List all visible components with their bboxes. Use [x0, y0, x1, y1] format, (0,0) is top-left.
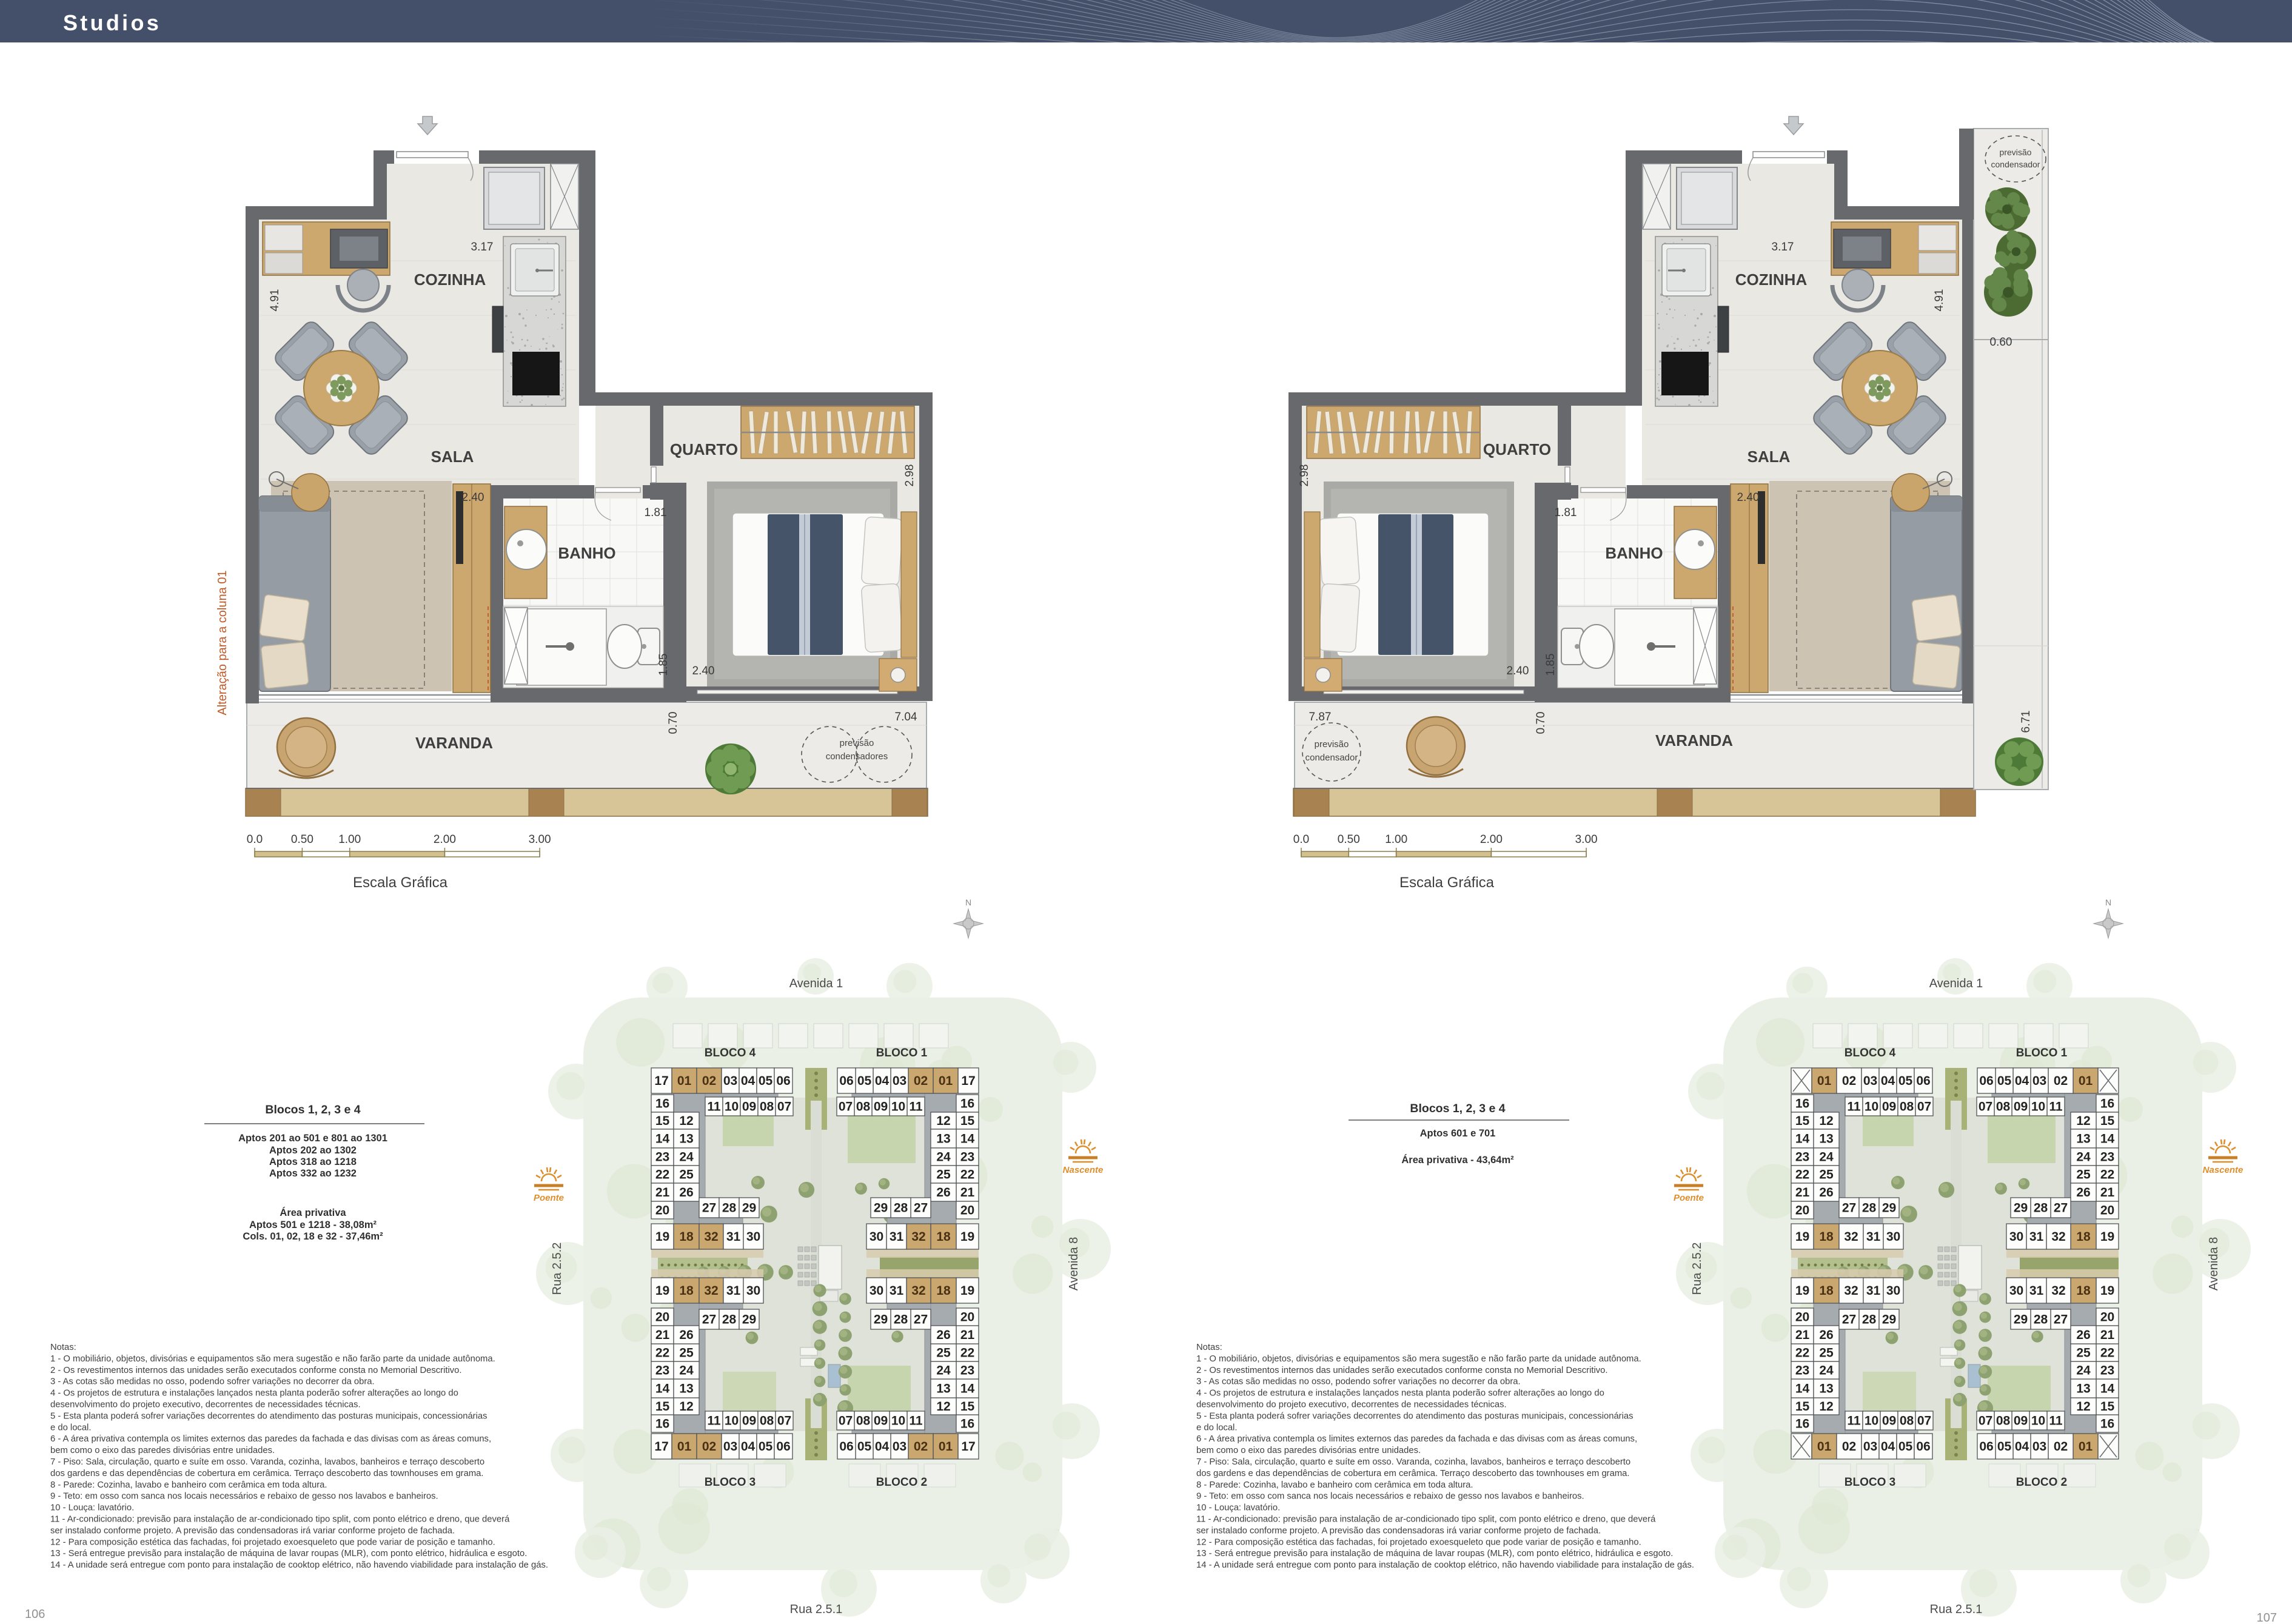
svg-text:09: 09: [874, 1414, 888, 1428]
svg-text:Escala Gráfica: Escala Gráfica: [353, 874, 448, 891]
svg-text:04: 04: [2015, 1074, 2029, 1088]
svg-text:Aptos 202 ao 1302: Aptos 202 ao 1302: [269, 1145, 357, 1156]
svg-text:Poente: Poente: [534, 1193, 564, 1203]
svg-text:15: 15: [2100, 1400, 2115, 1414]
svg-text:19: 19: [1795, 1284, 1809, 1298]
svg-text:29: 29: [874, 1201, 888, 1215]
svg-text:15: 15: [960, 1400, 975, 1414]
svg-text:06: 06: [776, 1440, 790, 1454]
svg-text:Nascente: Nascente: [1063, 1165, 1104, 1175]
svg-text:15: 15: [1795, 1400, 1810, 1414]
svg-text:23: 23: [655, 1150, 669, 1164]
svg-text:25: 25: [2076, 1168, 2091, 1182]
svg-text:Aptos 318 ao 1218: Aptos 318 ao 1218: [269, 1156, 357, 1167]
svg-text:previsão: previsão: [1315, 739, 1349, 750]
svg-text:27: 27: [702, 1201, 716, 1215]
svg-text:03: 03: [893, 1074, 906, 1088]
svg-text:Aptos 501 e 1218 - 38,08m²: Aptos 501 e 1218 - 38,08m²: [249, 1220, 377, 1230]
svg-text:24: 24: [2076, 1364, 2091, 1378]
svg-text:05: 05: [1898, 1074, 1913, 1088]
svg-text:4 - Os projetos de estrutura e: 4 - Os projetos de estrutura e instalaçõ…: [50, 1389, 458, 1398]
svg-text:1.85: 1.85: [657, 654, 670, 676]
svg-text:2.98: 2.98: [903, 465, 916, 487]
svg-text:21: 21: [655, 1186, 670, 1200]
svg-text:02: 02: [1842, 1440, 1856, 1454]
svg-text:18: 18: [2076, 1230, 2091, 1244]
svg-text:25: 25: [2076, 1346, 2091, 1360]
svg-text:7.87: 7.87: [1309, 711, 1332, 723]
svg-text:12: 12: [2076, 1400, 2090, 1414]
svg-text:02: 02: [914, 1440, 928, 1454]
svg-text:08: 08: [760, 1100, 774, 1114]
svg-text:8 - Parede: Cozinha, lavabo e: 8 - Parede: Cozinha, lavabo e banheiro c…: [50, 1480, 327, 1490]
svg-text:26: 26: [679, 1328, 693, 1342]
svg-text:0.70: 0.70: [1535, 712, 1547, 734]
svg-text:19: 19: [960, 1284, 974, 1298]
svg-text:22: 22: [655, 1346, 669, 1360]
svg-text:22: 22: [1795, 1168, 1809, 1182]
svg-text:01: 01: [2079, 1440, 2093, 1454]
svg-text:03: 03: [2032, 1440, 2046, 1454]
svg-text:17: 17: [654, 1440, 668, 1454]
svg-text:N: N: [2105, 898, 2111, 907]
svg-text:19: 19: [655, 1284, 669, 1298]
svg-text:24: 24: [936, 1364, 951, 1378]
svg-text:27: 27: [702, 1313, 716, 1327]
svg-text:desenvolvimento do projeto exe: desenvolvimento do projeto executivo, de…: [1196, 1400, 1507, 1410]
svg-text:28: 28: [722, 1201, 737, 1215]
svg-text:05: 05: [857, 1440, 872, 1454]
svg-text:14 - A unidade será entregue c: 14 - A unidade será entregue com ponto p…: [1196, 1560, 1694, 1570]
svg-text:25: 25: [1819, 1346, 1834, 1360]
svg-text:27: 27: [2054, 1313, 2068, 1327]
svg-text:BLOCO 2: BLOCO 2: [2016, 1476, 2067, 1489]
svg-text:21: 21: [960, 1186, 975, 1200]
svg-text:28: 28: [722, 1313, 737, 1327]
svg-text:Notas:: Notas:: [50, 1343, 76, 1352]
svg-text:08: 08: [1900, 1100, 1914, 1114]
svg-text:15: 15: [655, 1400, 670, 1414]
svg-text:Aptos 601 e 701: Aptos 601 e 701: [1420, 1128, 1496, 1139]
svg-text:20: 20: [960, 1204, 974, 1218]
svg-text:17: 17: [961, 1440, 975, 1454]
svg-text:04: 04: [875, 1440, 890, 1454]
svg-text:18: 18: [1819, 1230, 1834, 1244]
svg-text:Avenida 8: Avenida 8: [2207, 1237, 2220, 1291]
svg-text:01: 01: [677, 1440, 692, 1454]
svg-text:25: 25: [679, 1346, 694, 1360]
svg-text:1.81: 1.81: [645, 506, 667, 519]
svg-text:16: 16: [655, 1417, 669, 1431]
svg-text:32: 32: [2051, 1284, 2065, 1298]
svg-text:09: 09: [742, 1414, 756, 1428]
svg-text:3.17: 3.17: [471, 241, 494, 253]
svg-text:1.00: 1.00: [1385, 833, 1407, 846]
svg-text:32: 32: [2051, 1230, 2065, 1244]
svg-text:30: 30: [870, 1284, 883, 1298]
svg-text:01: 01: [1817, 1074, 1832, 1088]
svg-text:4 - Os projetos de estrutura e: 4 - Os projetos de estrutura e instalaçõ…: [1196, 1389, 1604, 1398]
svg-text:19: 19: [655, 1230, 669, 1244]
svg-text:20: 20: [655, 1204, 669, 1218]
svg-text:11: 11: [707, 1100, 721, 1114]
svg-text:27: 27: [1842, 1313, 1856, 1327]
svg-text:18: 18: [936, 1230, 951, 1244]
svg-text:02: 02: [2054, 1074, 2068, 1088]
svg-text:13: 13: [2076, 1132, 2090, 1146]
svg-text:32: 32: [1844, 1230, 1858, 1244]
svg-text:5 - Esta planta poderá sofrer: 5 - Esta planta poderá sofrer variações …: [1196, 1411, 1634, 1421]
svg-text:COZINHA: COZINHA: [1735, 270, 1808, 289]
svg-text:30: 30: [1886, 1284, 1900, 1298]
svg-text:07: 07: [1979, 1100, 1992, 1114]
svg-text:BLOCO 3: BLOCO 3: [1845, 1476, 1895, 1489]
svg-text:0.50: 0.50: [291, 833, 313, 846]
svg-text:16: 16: [960, 1417, 974, 1431]
svg-text:02: 02: [702, 1440, 716, 1454]
svg-text:23: 23: [960, 1150, 974, 1164]
svg-text:18: 18: [2076, 1284, 2091, 1298]
svg-text:Área privativa: Área privativa: [280, 1207, 346, 1218]
svg-text:12: 12: [679, 1400, 693, 1414]
svg-text:3 - As cotas são medidas no os: 3 - As cotas são medidas no osso, podend…: [50, 1377, 375, 1387]
svg-text:11: 11: [2049, 1414, 2063, 1428]
svg-text:22: 22: [2100, 1346, 2114, 1360]
svg-text:29: 29: [742, 1313, 756, 1327]
svg-text:2.00: 2.00: [434, 833, 456, 846]
svg-text:16: 16: [1795, 1417, 1809, 1431]
svg-text:Blocos 1, 2, 3 e 4: Blocos 1, 2, 3 e 4: [265, 1103, 360, 1116]
svg-text:5 - Esta planta poderá sofrer: 5 - Esta planta poderá sofrer variações …: [50, 1411, 488, 1421]
svg-text:dos gardens e das dependências: dos gardens e das dependências de cobert…: [1196, 1469, 1630, 1478]
svg-text:12: 12: [936, 1114, 950, 1128]
svg-text:31: 31: [890, 1230, 904, 1244]
svg-text:Nascente: Nascente: [2203, 1165, 2243, 1175]
svg-text:condensadores: condensadores: [826, 751, 888, 762]
svg-text:12: 12: [1819, 1400, 1833, 1414]
svg-text:24: 24: [2076, 1150, 2091, 1164]
svg-text:20: 20: [1795, 1310, 1809, 1324]
svg-text:02: 02: [914, 1074, 928, 1088]
svg-text:Aptos 201 ao 501 e 801 ao 1301: Aptos 201 ao 501 e 801 ao 1301: [238, 1133, 387, 1144]
svg-text:2.40: 2.40: [692, 665, 715, 677]
svg-text:16: 16: [2100, 1097, 2114, 1111]
svg-text:15: 15: [2100, 1114, 2115, 1128]
svg-text:26: 26: [1819, 1186, 1833, 1200]
svg-text:30: 30: [2009, 1284, 2023, 1298]
svg-text:2.40: 2.40: [1507, 665, 1529, 677]
svg-text:0.60: 0.60: [1990, 336, 2012, 349]
svg-text:23: 23: [1795, 1150, 1809, 1164]
svg-text:17: 17: [654, 1074, 668, 1088]
svg-text:31: 31: [2029, 1284, 2044, 1298]
svg-text:24: 24: [679, 1364, 694, 1378]
svg-text:27: 27: [2054, 1201, 2068, 1215]
svg-text:02: 02: [2054, 1440, 2068, 1454]
svg-text:29: 29: [874, 1313, 888, 1327]
svg-text:01: 01: [1817, 1440, 1832, 1454]
svg-text:32: 32: [704, 1284, 718, 1298]
svg-text:16: 16: [1795, 1097, 1809, 1111]
svg-text:13: 13: [1819, 1382, 1833, 1396]
svg-text:3.00: 3.00: [529, 833, 551, 846]
svg-text:30: 30: [746, 1230, 760, 1244]
svg-text:6.71: 6.71: [2020, 711, 2032, 733]
svg-text:24: 24: [1819, 1364, 1834, 1378]
svg-text:28: 28: [894, 1201, 908, 1215]
svg-text:30: 30: [746, 1284, 760, 1298]
svg-text:1.81: 1.81: [1555, 506, 1577, 519]
svg-text:14: 14: [960, 1132, 975, 1146]
svg-text:VARANDA: VARANDA: [1655, 731, 1733, 750]
svg-text:25: 25: [1819, 1168, 1834, 1182]
svg-text:03: 03: [723, 1440, 737, 1454]
svg-text:3.17: 3.17: [1772, 241, 1794, 253]
svg-text:11: 11: [1847, 1414, 1861, 1428]
svg-text:09: 09: [1882, 1414, 1896, 1428]
svg-text:16: 16: [2100, 1417, 2114, 1431]
svg-text:2.00: 2.00: [1480, 833, 1503, 846]
svg-text:Rua 2.5.1: Rua 2.5.1: [1930, 1603, 1983, 1616]
svg-text:19: 19: [2100, 1230, 2114, 1244]
svg-text:28: 28: [1862, 1201, 1877, 1215]
svg-text:14: 14: [655, 1382, 670, 1396]
svg-text:20: 20: [1795, 1204, 1809, 1218]
svg-text:13: 13: [679, 1382, 693, 1396]
svg-text:08: 08: [1996, 1414, 2011, 1428]
svg-text:1 - O mobiliário, objetos, div: 1 - O mobiliário, objetos, divisórias e …: [1196, 1354, 1641, 1364]
svg-text:23: 23: [960, 1364, 974, 1378]
svg-text:32: 32: [1844, 1284, 1858, 1298]
svg-text:23: 23: [1795, 1364, 1809, 1378]
svg-text:10: 10: [891, 1100, 905, 1114]
svg-text:02: 02: [702, 1074, 716, 1088]
svg-text:14: 14: [960, 1382, 975, 1396]
svg-text:16: 16: [655, 1097, 669, 1111]
svg-text:12: 12: [679, 1114, 693, 1128]
svg-text:08: 08: [856, 1414, 871, 1428]
svg-text:17: 17: [961, 1074, 975, 1088]
svg-text:Cols. 01, 02, 18 e 32 - 37,46m: Cols. 01, 02, 18 e 32 - 37,46m²: [243, 1231, 383, 1242]
svg-text:previsão: previsão: [840, 738, 874, 748]
svg-text:25: 25: [936, 1346, 951, 1360]
svg-text:08: 08: [856, 1100, 871, 1114]
svg-text:24: 24: [1819, 1150, 1834, 1164]
svg-text:13: 13: [936, 1382, 950, 1396]
svg-text:12: 12: [2076, 1114, 2090, 1128]
svg-text:BLOCO 2: BLOCO 2: [876, 1476, 927, 1489]
svg-text:31: 31: [726, 1230, 741, 1244]
svg-text:11: 11: [707, 1414, 721, 1428]
svg-text:05: 05: [1997, 1074, 2012, 1088]
svg-text:9 - Teto: em osso com sanca no: 9 - Teto: em osso com sanca nos locais n…: [1196, 1492, 1584, 1502]
svg-text:1 - O mobiliário, objetos, div: 1 - O mobiliário, objetos, divisórias e …: [50, 1354, 495, 1364]
svg-text:06: 06: [776, 1074, 790, 1088]
svg-text:29: 29: [1882, 1201, 1896, 1215]
svg-text:Avenida 1: Avenida 1: [1929, 977, 1983, 990]
svg-text:19: 19: [1795, 1230, 1809, 1244]
svg-text:02: 02: [1842, 1074, 1856, 1088]
svg-text:Rua 2.5.1: Rua 2.5.1: [790, 1603, 843, 1616]
svg-text:10: 10: [1865, 1414, 1878, 1428]
svg-text:21: 21: [2100, 1328, 2115, 1342]
svg-text:23: 23: [2100, 1364, 2114, 1378]
svg-text:4.91: 4.91: [1933, 289, 1946, 312]
svg-text:6 - A área privativa contempla: 6 - A área privativa contempla os limite…: [1196, 1434, 1637, 1444]
svg-text:2 - Os revestimentos internos: 2 - Os revestimentos internos das unidad…: [50, 1366, 462, 1375]
svg-text:16: 16: [960, 1097, 974, 1111]
svg-text:13: 13: [936, 1132, 950, 1146]
svg-text:Avenida 1: Avenida 1: [789, 977, 843, 990]
svg-text:14: 14: [655, 1132, 670, 1146]
svg-text:2.98: 2.98: [1298, 465, 1311, 487]
svg-text:13: 13: [679, 1132, 693, 1146]
svg-text:15: 15: [1795, 1114, 1810, 1128]
svg-text:27: 27: [914, 1201, 928, 1215]
svg-text:bem como o eixo das paredes di: bem como o eixo das paredes divisórias e…: [50, 1446, 275, 1455]
svg-text:2.40: 2.40: [1737, 491, 1760, 504]
svg-text:7 - Piso: Sala, circulação, qu: 7 - Piso: Sala, circulação, quarto e suí…: [50, 1457, 484, 1467]
svg-text:VARANDA: VARANDA: [415, 734, 493, 752]
svg-text:Aptos 332 ao 1232: Aptos 332 ao 1232: [269, 1168, 357, 1179]
svg-text:Poente: Poente: [1674, 1193, 1704, 1203]
svg-text:24: 24: [679, 1150, 694, 1164]
svg-text:29: 29: [2014, 1313, 2028, 1327]
svg-text:04: 04: [2015, 1440, 2029, 1454]
svg-text:e do local.: e do local.: [1196, 1423, 1237, 1432]
svg-text:10: 10: [1865, 1100, 1878, 1114]
svg-text:previsão: previsão: [2000, 147, 2032, 157]
svg-text:14: 14: [2100, 1382, 2115, 1396]
svg-text:26: 26: [1819, 1328, 1833, 1342]
svg-text:29: 29: [2014, 1201, 2028, 1215]
svg-text:BLOCO 4: BLOCO 4: [1845, 1047, 1896, 1059]
svg-text:22: 22: [2100, 1168, 2114, 1182]
svg-text:1.85: 1.85: [1544, 654, 1557, 676]
svg-text:26: 26: [2076, 1328, 2090, 1342]
svg-text:15: 15: [960, 1114, 975, 1128]
svg-text:QUARTO: QUARTO: [1483, 440, 1551, 458]
svg-text:N: N: [965, 898, 971, 907]
svg-text:27: 27: [1842, 1201, 1856, 1215]
svg-text:26: 26: [2076, 1186, 2090, 1200]
svg-text:22: 22: [960, 1168, 974, 1182]
svg-text:29: 29: [1882, 1313, 1896, 1327]
svg-text:Rua 2.5.2: Rua 2.5.2: [1691, 1243, 1704, 1295]
svg-text:28: 28: [1862, 1313, 1877, 1327]
svg-text:0.70: 0.70: [667, 712, 680, 734]
svg-text:BLOCO 1: BLOCO 1: [2016, 1047, 2068, 1059]
svg-text:0.0: 0.0: [247, 833, 263, 846]
svg-text:bem como o eixo das paredes di: bem como o eixo das paredes divisórias e…: [1196, 1446, 1421, 1455]
svg-text:20: 20: [960, 1310, 974, 1324]
svg-text:14 - A unidade será entregue c: 14 - A unidade será entregue com ponto p…: [50, 1560, 548, 1570]
svg-text:Área privativa - 43,64m²: Área privativa - 43,64m²: [1401, 1154, 1514, 1166]
svg-text:05: 05: [1997, 1440, 2012, 1454]
svg-text:BANHO: BANHO: [1605, 544, 1663, 562]
svg-text:15: 15: [655, 1114, 670, 1128]
svg-text:23: 23: [2100, 1150, 2114, 1164]
svg-text:11: 11: [909, 1414, 923, 1428]
svg-text:Studios: Studios: [63, 10, 161, 35]
svg-text:07: 07: [1917, 1100, 1931, 1114]
svg-text:05: 05: [857, 1074, 872, 1088]
svg-text:31: 31: [1866, 1230, 1881, 1244]
svg-text:18: 18: [1819, 1284, 1834, 1298]
svg-text:01: 01: [2079, 1074, 2093, 1088]
svg-text:01: 01: [939, 1440, 953, 1454]
svg-text:07: 07: [777, 1100, 791, 1114]
svg-text:01: 01: [677, 1074, 692, 1088]
svg-text:6 - A área privativa contempla: 6 - A área privativa contempla os limite…: [50, 1434, 491, 1444]
svg-text:21: 21: [1795, 1328, 1810, 1342]
svg-text:18: 18: [936, 1284, 951, 1298]
svg-text:04: 04: [1881, 1440, 1895, 1454]
svg-text:14: 14: [2100, 1132, 2115, 1146]
svg-text:10: 10: [891, 1414, 905, 1428]
svg-text:07: 07: [839, 1100, 853, 1114]
svg-text:04: 04: [741, 1440, 756, 1454]
svg-text:0.0: 0.0: [1293, 833, 1309, 846]
svg-text:condensador: condensador: [1305, 753, 1358, 763]
svg-text:11 - Ar-condicionado: previsão: 11 - Ar-condicionado: previsão para inst…: [50, 1515, 510, 1525]
svg-text:28: 28: [2034, 1313, 2048, 1327]
svg-text:106: 106: [25, 1608, 45, 1621]
svg-text:11 - Ar-condicionado: previsão: 11 - Ar-condicionado: previsão para inst…: [1196, 1515, 1656, 1525]
svg-text:13 - Será entregue previsão pa: 13 - Será entregue previsão para instala…: [1196, 1549, 1673, 1559]
svg-text:10: 10: [725, 1100, 739, 1114]
svg-text:ser instalado conforme projeto: ser instalado conforme projeto. A previs…: [1196, 1526, 1601, 1535]
svg-text:23: 23: [655, 1364, 669, 1378]
svg-text:14: 14: [1795, 1132, 1810, 1146]
svg-text:10: 10: [2031, 1100, 2045, 1114]
svg-text:06: 06: [1916, 1440, 1930, 1454]
svg-text:13: 13: [2076, 1382, 2090, 1396]
svg-text:7.04: 7.04: [895, 711, 917, 723]
svg-text:22: 22: [1795, 1346, 1809, 1360]
svg-text:11: 11: [909, 1100, 923, 1114]
svg-text:13: 13: [1819, 1132, 1833, 1146]
svg-text:09: 09: [742, 1100, 756, 1114]
svg-text:8 - Parede: Cozinha, lavabo e: 8 - Parede: Cozinha, lavabo e banheiro c…: [1196, 1480, 1473, 1490]
svg-text:21: 21: [655, 1328, 670, 1342]
svg-text:13 - Será entregue previsão pa: 13 - Será entregue previsão para instala…: [50, 1549, 527, 1559]
svg-text:27: 27: [914, 1313, 928, 1327]
svg-text:04: 04: [1881, 1074, 1895, 1088]
svg-text:19: 19: [2100, 1284, 2114, 1298]
svg-text:22: 22: [655, 1168, 669, 1182]
svg-text:28: 28: [2034, 1201, 2048, 1215]
svg-text:07: 07: [777, 1414, 791, 1428]
svg-text:21: 21: [2100, 1186, 2115, 1200]
svg-text:12: 12: [1819, 1114, 1833, 1128]
svg-text:05: 05: [759, 1074, 773, 1088]
svg-text:21: 21: [960, 1328, 975, 1342]
svg-text:18: 18: [679, 1230, 694, 1244]
svg-text:4.91: 4.91: [269, 289, 281, 312]
svg-text:QUARTO: QUARTO: [670, 440, 738, 458]
svg-text:31: 31: [726, 1284, 741, 1298]
svg-text:08: 08: [760, 1414, 774, 1428]
svg-text:Avenida 8: Avenida 8: [1067, 1237, 1081, 1291]
svg-text:05: 05: [759, 1440, 773, 1454]
svg-text:BLOCO 3: BLOCO 3: [705, 1476, 756, 1489]
svg-text:SALA: SALA: [1747, 448, 1791, 466]
svg-text:32: 32: [911, 1284, 925, 1298]
svg-text:Escala Gráfica: Escala Gráfica: [1399, 874, 1495, 891]
svg-text:09: 09: [2014, 1100, 2028, 1114]
svg-text:3 - As cotas são medidas no os: 3 - As cotas são medidas no osso, podend…: [1196, 1377, 1521, 1387]
